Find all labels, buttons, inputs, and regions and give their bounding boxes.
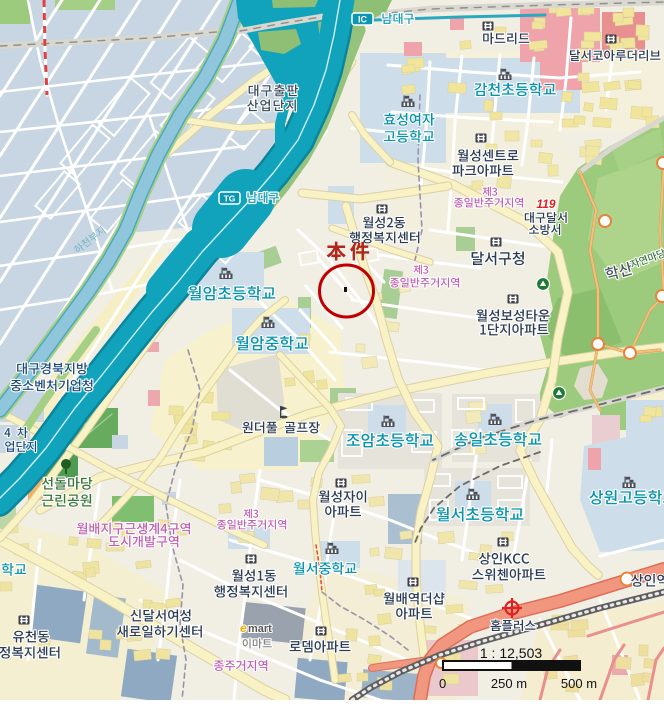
svg-text:250 m: 250 m [491,676,527,691]
svg-text:1 : 12,503: 1 : 12,503 [480,645,542,661]
svg-text:e: e [240,621,247,635]
svg-text:0: 0 [439,676,446,691]
svg-text:IC: IC [358,15,368,25]
svg-text:500 m: 500 m [561,676,597,691]
svg-text:mart: mart [248,623,272,635]
svg-text:119: 119 [536,197,555,211]
svg-text:TG: TG [224,194,236,204]
